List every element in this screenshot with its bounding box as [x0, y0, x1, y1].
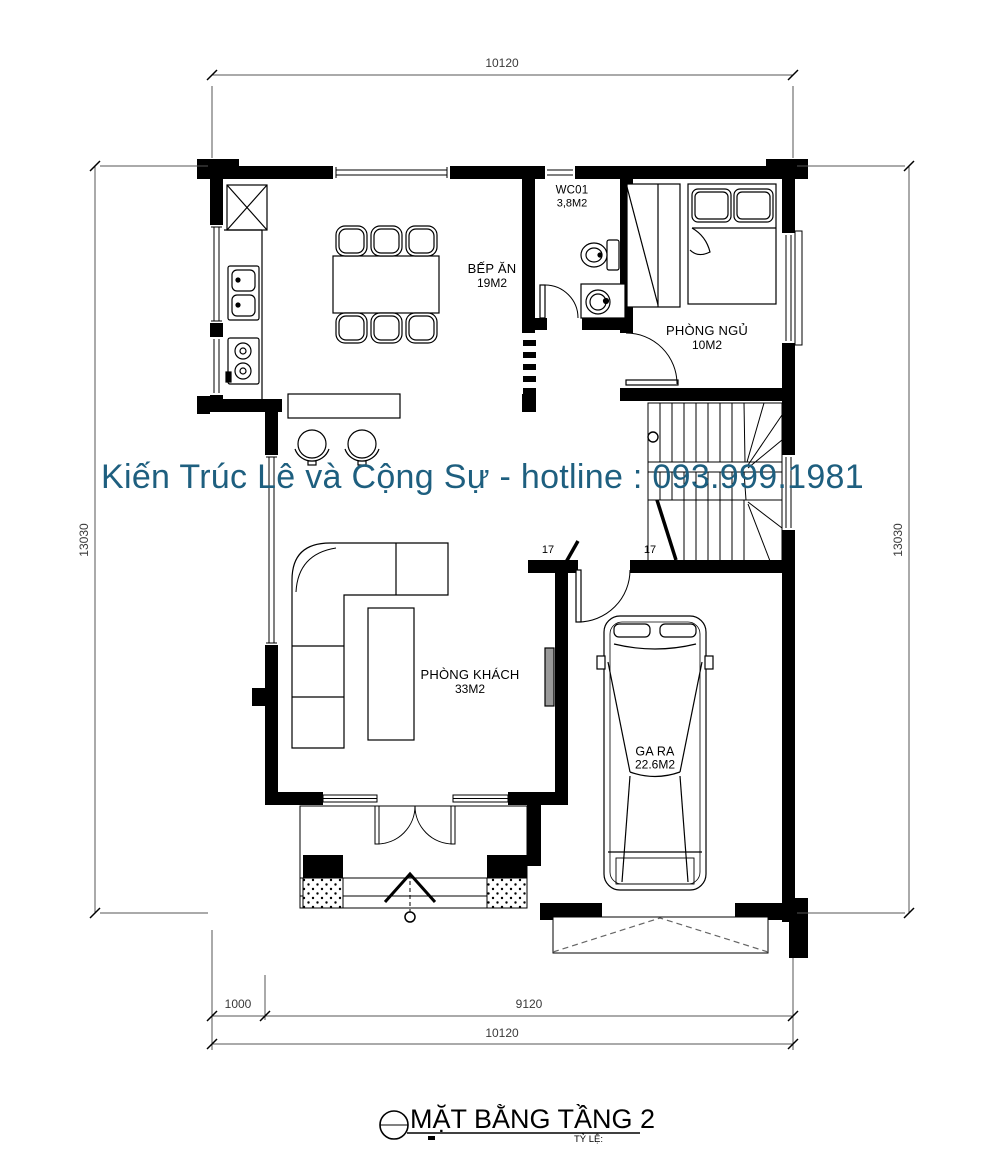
dim-bottom-offset: 1000 — [225, 997, 252, 1011]
entry-sidelight-left — [323, 795, 377, 802]
stair-break-line — [657, 500, 676, 560]
tv — [545, 648, 554, 706]
room-label-garage: GA RA 22.6M2 — [635, 744, 675, 771]
wc-sink — [581, 284, 625, 318]
porch-column-left — [303, 878, 343, 908]
dim-top-width: 10120 — [485, 56, 518, 70]
wc-top-window — [545, 166, 575, 179]
ramp — [553, 917, 768, 953]
room-label-wc: WC01 3,8M2 — [556, 184, 589, 209]
room-label-bedroom: PHÒNG NGỦ 10M2 — [666, 324, 748, 352]
kitchen-left-window-1 — [210, 225, 223, 323]
wc-name: WC01 — [556, 184, 589, 197]
kitchen-sink — [228, 266, 259, 320]
bedroom-fixtures — [626, 184, 776, 385]
wc-door — [540, 285, 578, 318]
living-area: 33M2 — [421, 683, 520, 696]
wardrobe — [627, 184, 680, 307]
bedroom-area: 10M2 — [666, 339, 748, 352]
dim-bottom-main: 9120 — [516, 997, 543, 1011]
floor-plan-drawing — [0, 0, 1000, 1164]
coffee-table — [368, 608, 414, 740]
garage-name: GA RA — [635, 744, 675, 758]
kitchen-fixtures — [224, 185, 439, 465]
floor-plan-page: 10120 13030 13030 1000 9120 10120 BẾP ĂN… — [0, 0, 1000, 1164]
dim-bottom-total: 10120 — [485, 1026, 518, 1040]
bedroom-name: PHÒNG NGỦ — [666, 324, 748, 339]
kitchen-area: 19M2 — [468, 277, 517, 290]
entry-arrow — [385, 874, 435, 922]
garage-area: 22.6M2 — [635, 758, 675, 771]
porch-column-right — [487, 878, 527, 908]
dim-right-height: 13030 — [891, 523, 905, 556]
room-label-kitchen: BẾP ĂN 19M2 — [468, 262, 517, 290]
stair-riser-count: 17 — [644, 544, 656, 556]
stove — [226, 338, 259, 384]
watermark-text: Kiến Trúc Lê và Cộng Sự - hotline : 093.… — [101, 458, 864, 497]
bar-counter — [288, 394, 400, 418]
kitchen-top-window — [333, 166, 450, 179]
stair-riser-count-hall: 17 — [542, 544, 554, 556]
toilet — [581, 240, 619, 270]
living-fixtures — [292, 543, 554, 748]
page-title: MẶT BẰNG TẦNG 2 — [410, 1104, 655, 1135]
living-name: PHÒNG KHÁCH — [421, 668, 520, 683]
bed — [688, 184, 776, 304]
wc-area: 3,8M2 — [556, 197, 589, 209]
entry-sidelight-right — [453, 795, 508, 802]
dining-table — [333, 256, 439, 313]
room-label-living: PHÒNG KHÁCH 33M2 — [421, 668, 520, 696]
garage-door — [576, 570, 630, 622]
wc-fixtures — [540, 240, 625, 318]
kitchen-left-window-2 — [210, 337, 223, 395]
scale-label: TỶ LỆ: — [574, 1134, 603, 1145]
dim-left-height: 13030 — [77, 523, 91, 556]
kitchen-name: BẾP ĂN — [468, 262, 517, 277]
bedroom-right-window — [782, 231, 802, 345]
shaft-box — [227, 185, 267, 230]
entry-double-door — [375, 806, 455, 844]
